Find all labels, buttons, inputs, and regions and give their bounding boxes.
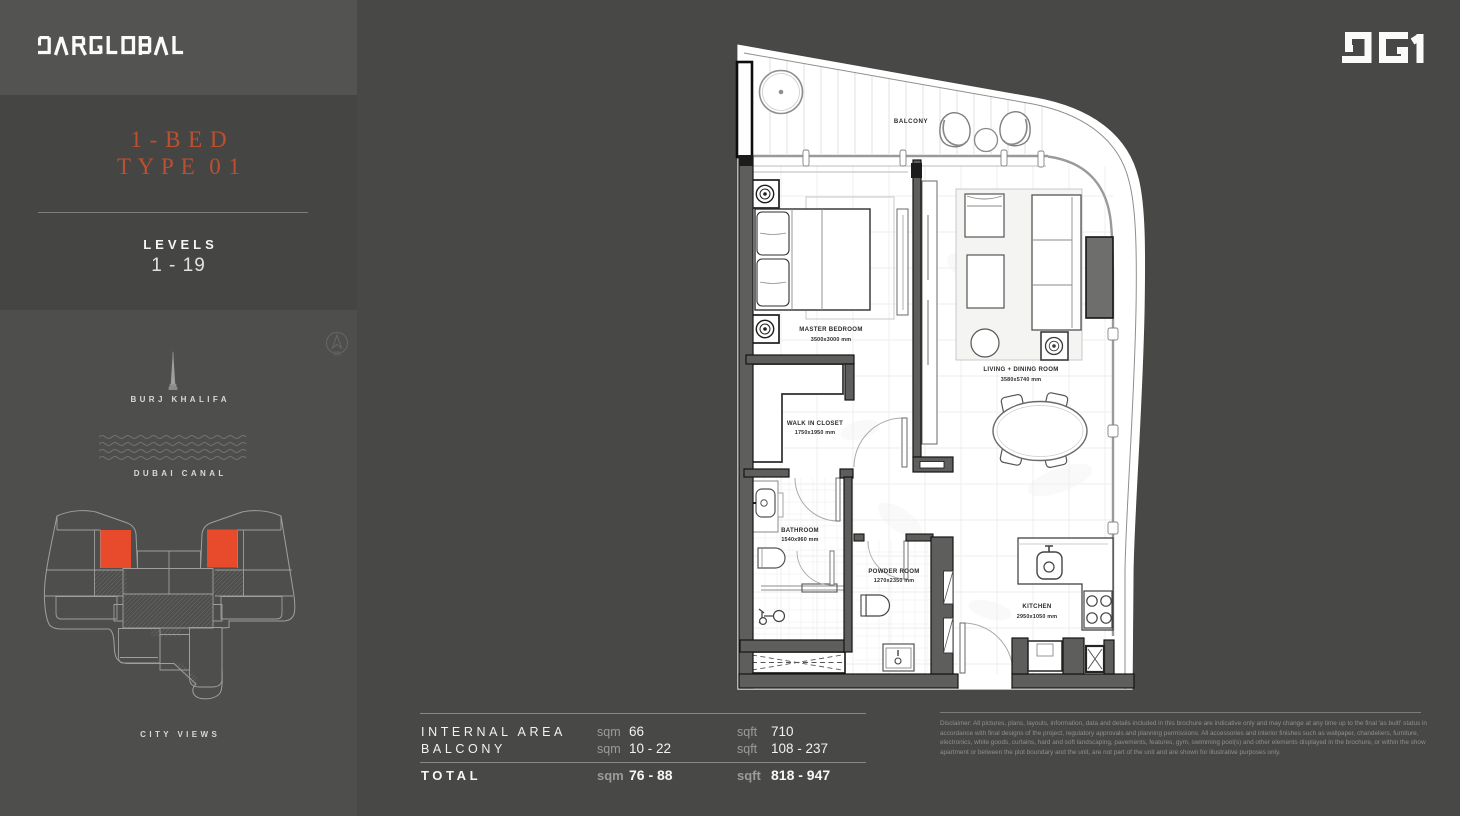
svg-text:BALCONY: BALCONY [894,118,928,125]
svg-text:1270x2350 mm: 1270x2350 mm [874,578,914,584]
svg-text:POWDER ROOM: POWDER ROOM [868,568,919,575]
svg-text:LIVING + DINING ROOM: LIVING + DINING ROOM [983,366,1058,373]
svg-text:WALK IN CLOSET: WALK IN CLOSET [787,420,843,427]
svg-text:MASTER BEDROOM: MASTER BEDROOM [799,326,862,333]
svg-text:1540x960 mm: 1540x960 mm [781,537,818,543]
svg-text:2950x1050 mm: 2950x1050 mm [1017,614,1057,620]
svg-text:BATHROOM: BATHROOM [781,527,819,534]
svg-text:KITCHEN: KITCHEN [1022,603,1051,610]
svg-text:1750x1950 mm: 1750x1950 mm [795,430,835,436]
svg-text:3500x3000 mm: 3500x3000 mm [811,337,851,343]
svg-text:3580x5740 mm: 3580x5740 mm [1001,377,1041,383]
